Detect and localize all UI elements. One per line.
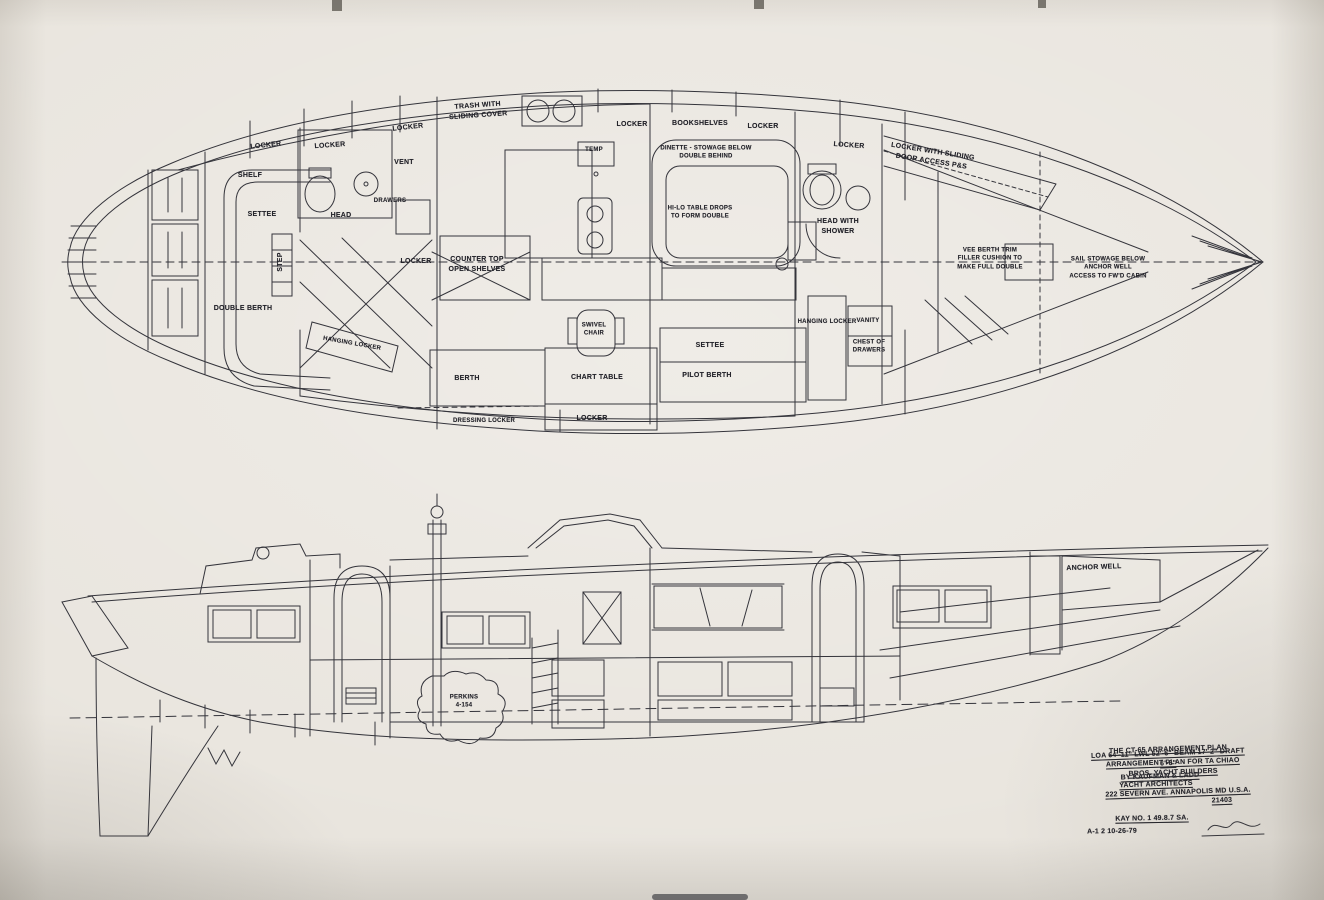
companionway-step [272,234,292,296]
sink-unit [522,96,582,126]
engine [417,660,604,744]
profile-view-drawing [62,494,1268,836]
sink-icon [354,172,378,196]
hanging-locker-aft [306,322,398,372]
windshield [528,514,662,548]
galley [440,96,614,300]
hull-bottom [92,548,1268,740]
anchor-well [880,550,1258,678]
stern-hatch [68,226,96,298]
signature-mark [1202,822,1264,836]
chest-of-drawers [848,336,892,366]
saloon-berths [398,328,806,408]
transom [62,596,128,656]
sole-band [662,268,796,300]
rudder [96,658,218,836]
dinette-table [666,166,788,258]
nav-station [545,310,657,430]
sheer-line [88,545,1268,596]
plan-view-drawing [62,89,1263,434]
sink-icon [553,100,575,122]
blueprint-sheet: LOCKERLOCKERLOCKERVENTTRASH WITH SLIDING… [0,0,1324,900]
frame-ticks [160,700,375,745]
arch-door-aft [334,566,390,722]
sink-icon [527,100,549,122]
settee-outline [224,170,330,390]
sole-band [542,258,662,300]
dinette [652,140,800,270]
temp-box [578,142,614,166]
toilet-icon [803,171,841,209]
winch-icon [257,547,269,559]
hanging-locker [808,296,846,400]
toilet-icon [305,176,335,212]
shower-floor [396,200,430,234]
blueprint-line-art [0,0,1324,900]
arch-door-fwd [812,554,864,722]
vanity [848,306,892,336]
sole-hatch [300,238,530,368]
sink-icon [846,186,870,210]
swivel-chair-icon [577,310,615,356]
bookshelf [652,584,784,630]
masthead-light [431,506,443,518]
shower-floor [788,222,816,260]
drawer-stack [152,170,198,336]
cabin-windows [208,586,991,648]
sliding-locker [884,136,1056,210]
mast [428,494,446,726]
